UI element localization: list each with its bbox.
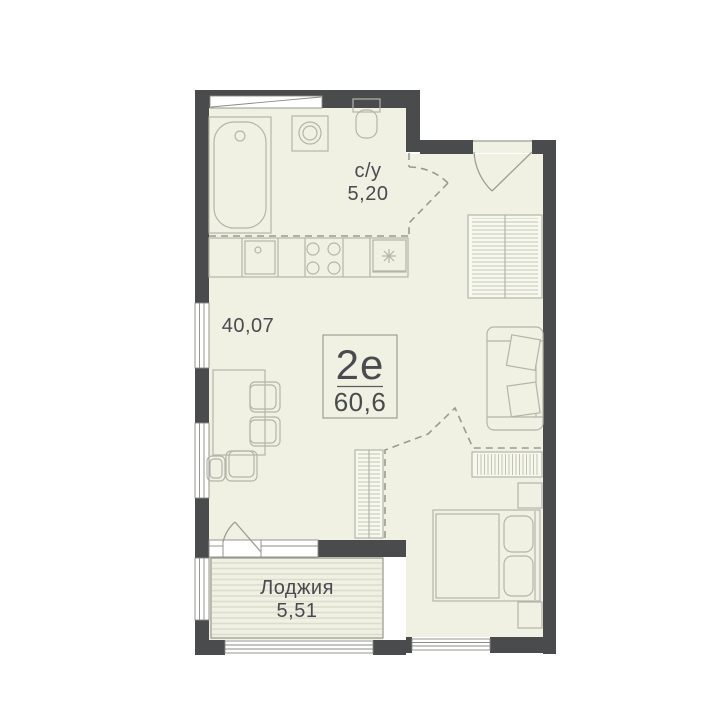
living-area-label: 40,07 <box>222 315 275 337</box>
loggia-bottom-window <box>225 641 373 653</box>
bathroom-name-label: с/у <box>354 160 381 182</box>
transom-window <box>210 96 322 108</box>
floor-plan: с/у 5,20 40,07 Лоджия 5,51 2е 60,6 <box>0 0 726 726</box>
wardrobe-icon <box>468 215 542 298</box>
snowflake-icon <box>382 249 396 263</box>
bedroom-bottom-window <box>412 639 490 650</box>
loggia-left-window <box>195 558 209 620</box>
dresser-icon <box>472 452 542 477</box>
balcony-door-window-band <box>209 540 318 557</box>
loggia-name-label: Лоджия <box>260 577 334 599</box>
left-window-1 <box>195 303 209 368</box>
loggia-area-label: 5,51 <box>277 600 318 622</box>
unit-area-label: 60,6 <box>334 387 387 417</box>
bathroom-area-label: 5,20 <box>348 183 389 205</box>
bed-icon <box>433 510 540 601</box>
floor-plan-canvas: с/у 5,20 40,07 Лоджия 5,51 2е 60,6 <box>0 0 726 726</box>
shelving-icon <box>355 450 383 538</box>
unit-type-label: 2е <box>336 341 385 388</box>
